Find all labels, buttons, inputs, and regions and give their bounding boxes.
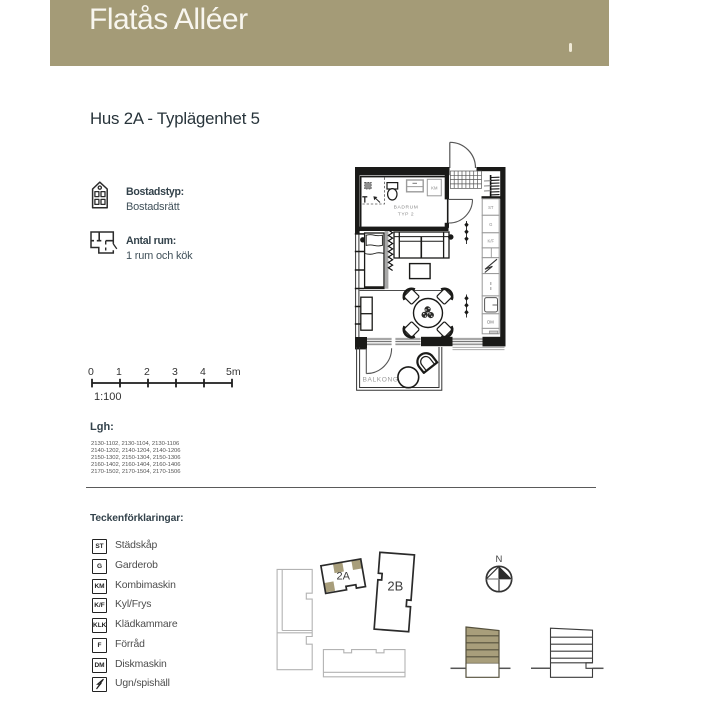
svg-text:DM: DM [487,319,494,324]
svg-text:TYP 2: TYP 2 [398,212,415,218]
svg-text:BADRUM: BADRUM [394,205,419,211]
svg-text:K/F: K/F [488,238,495,243]
svg-text:BALKONG: BALKONG [363,377,399,384]
svg-text:G: G [489,222,492,227]
svg-text:KM: KM [431,186,438,191]
svg-text:2B: 2B [387,579,403,594]
svg-text:ST: ST [488,205,494,210]
svg-text:2A: 2A [336,571,350,583]
svg-text:N: N [496,554,503,565]
